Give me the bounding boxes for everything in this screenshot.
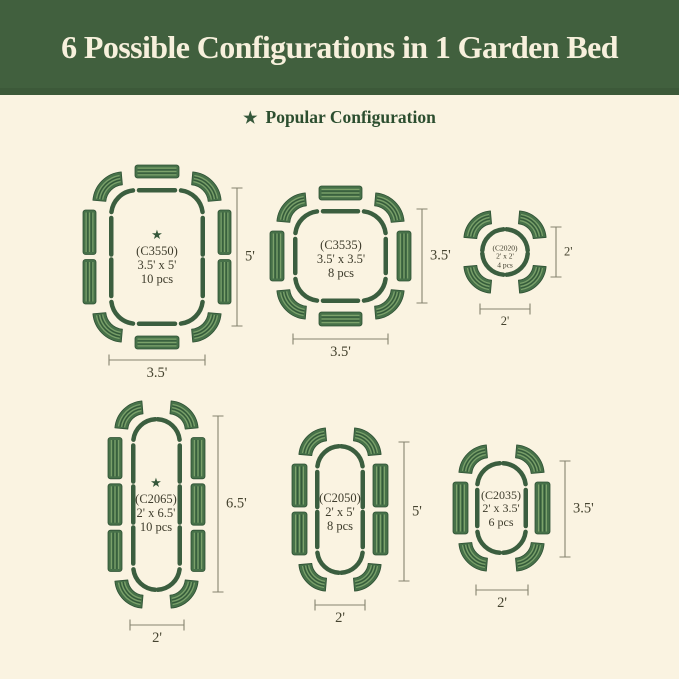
config-size: 2' x 3.5' xyxy=(481,502,521,515)
config-size: 2' x 6.5' xyxy=(135,506,177,520)
side-panel xyxy=(535,482,550,534)
config-label-c3535: (C3535) 3.5' x 3.5' 8 pcs xyxy=(317,238,365,280)
config-label-c2035: (C2035) 2' x 3.5' 6 pcs xyxy=(481,489,521,529)
config-label-c2020: (C2020) 2' x 2' 4 pcs xyxy=(493,244,518,269)
config-code: (C2065) xyxy=(135,492,177,506)
config-label-c2050: (C2050) 2' x 5' 8 pcs xyxy=(319,491,361,533)
config-size: 3.5' x 5' xyxy=(136,258,178,272)
config-pieces: 8 pcs xyxy=(319,519,361,533)
end-panel xyxy=(319,312,362,326)
end-panel xyxy=(135,336,179,349)
side-panel xyxy=(191,438,205,479)
height-dimension-label: 2' xyxy=(564,245,573,260)
popular-star-icon: ★ xyxy=(135,476,177,490)
config-pieces: 4 pcs xyxy=(493,261,518,269)
width-dimension-label: 2' xyxy=(501,314,510,329)
width-dimension-label: 3.5' xyxy=(147,365,168,382)
height-dimension-label: 5' xyxy=(412,503,422,520)
side-panel xyxy=(191,530,205,571)
config-label-c2065: ★ (C2065) 2' x 6.5' 10 pcs xyxy=(135,476,177,534)
config-pieces: 10 pcs xyxy=(136,272,178,286)
config-code: (C3535) xyxy=(317,238,365,252)
side-panel xyxy=(218,260,231,305)
config-pieces: 6 pcs xyxy=(481,516,521,529)
side-panel xyxy=(191,484,205,525)
height-dimension-label: 3.5' xyxy=(573,501,594,518)
side-panel xyxy=(108,484,122,525)
side-panel xyxy=(108,438,122,479)
side-panel xyxy=(397,231,411,281)
side-panel xyxy=(373,512,388,555)
infographic-canvas: 6 Possible Configurations in 1 Garden Be… xyxy=(0,0,679,679)
popular-star-icon: ★ xyxy=(136,228,178,242)
side-panel xyxy=(270,231,284,281)
side-panel xyxy=(218,210,231,255)
config-pieces: 8 pcs xyxy=(317,266,365,280)
config-code: (C2050) xyxy=(319,491,361,505)
height-dimension-label: 5' xyxy=(245,249,255,266)
side-panel xyxy=(453,482,468,534)
side-panel xyxy=(83,210,96,255)
width-dimension-label: 2' xyxy=(335,610,345,627)
config-pieces: 10 pcs xyxy=(135,520,177,534)
width-dimension-label: 3.5' xyxy=(330,344,351,361)
width-dimension-label: 2' xyxy=(152,630,162,647)
end-panel xyxy=(319,186,362,200)
config-code: (C3550) xyxy=(136,244,178,258)
config-code: (C2035) xyxy=(481,489,521,502)
configurations-artwork xyxy=(0,0,679,679)
config-size: 3.5' x 3.5' xyxy=(317,252,365,266)
height-dimension-label: 6.5' xyxy=(226,496,247,513)
width-dimension-label: 2' xyxy=(497,595,507,612)
side-panel xyxy=(292,512,307,555)
config-size: 2' x 5' xyxy=(319,505,361,519)
side-panel xyxy=(373,464,388,507)
side-panel xyxy=(108,530,122,571)
height-dimension-label: 3.5' xyxy=(430,248,451,265)
config-label-c3550: ★ (C3550) 3.5' x 5' 10 pcs xyxy=(136,228,178,286)
end-panel xyxy=(135,165,179,178)
side-panel xyxy=(83,260,96,305)
side-panel xyxy=(292,464,307,507)
